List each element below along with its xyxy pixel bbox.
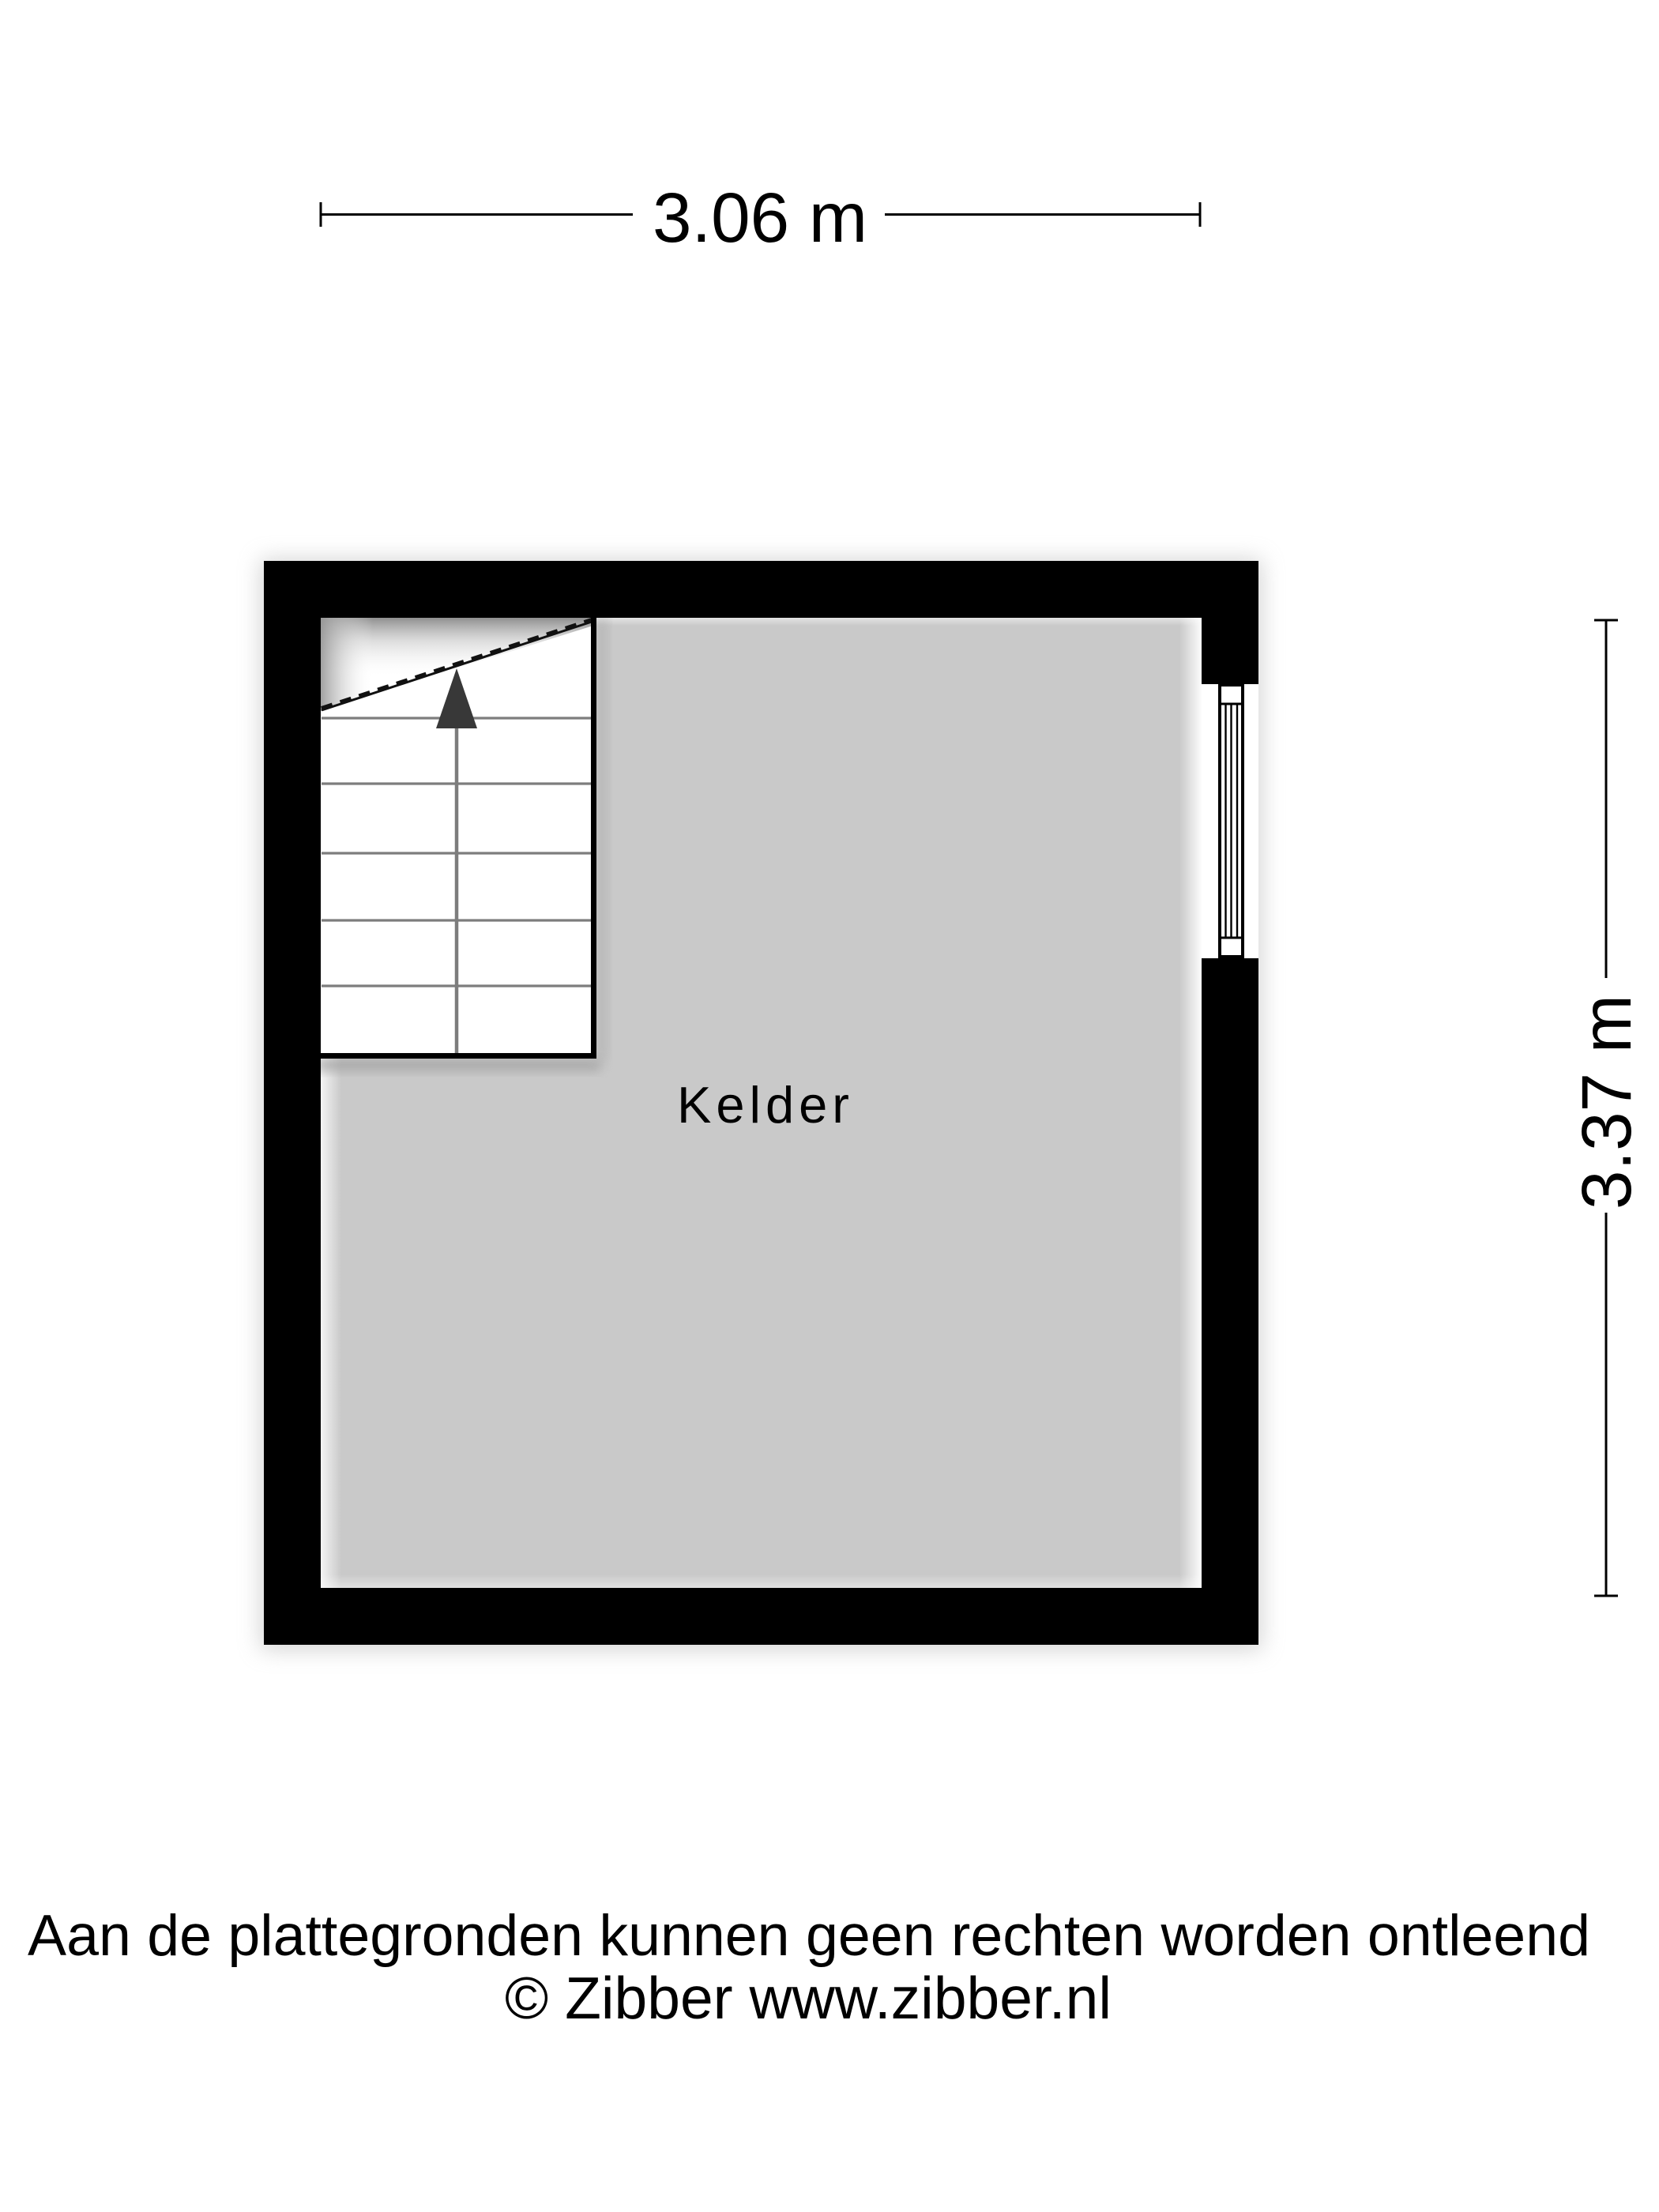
svg-text:3.37 m: 3.37 m [1567, 995, 1646, 1209]
svg-text:3.06 m: 3.06 m [653, 178, 867, 257]
svg-text:© Zibber www.zibber.nl: © Zibber www.zibber.nl [505, 1965, 1112, 2031]
svg-text:Aan de plattegronden kunnen ge: Aan de plattegronden kunnen geen rechten… [28, 1902, 1590, 1968]
svg-text:Kelder: Kelder [677, 1076, 854, 1134]
